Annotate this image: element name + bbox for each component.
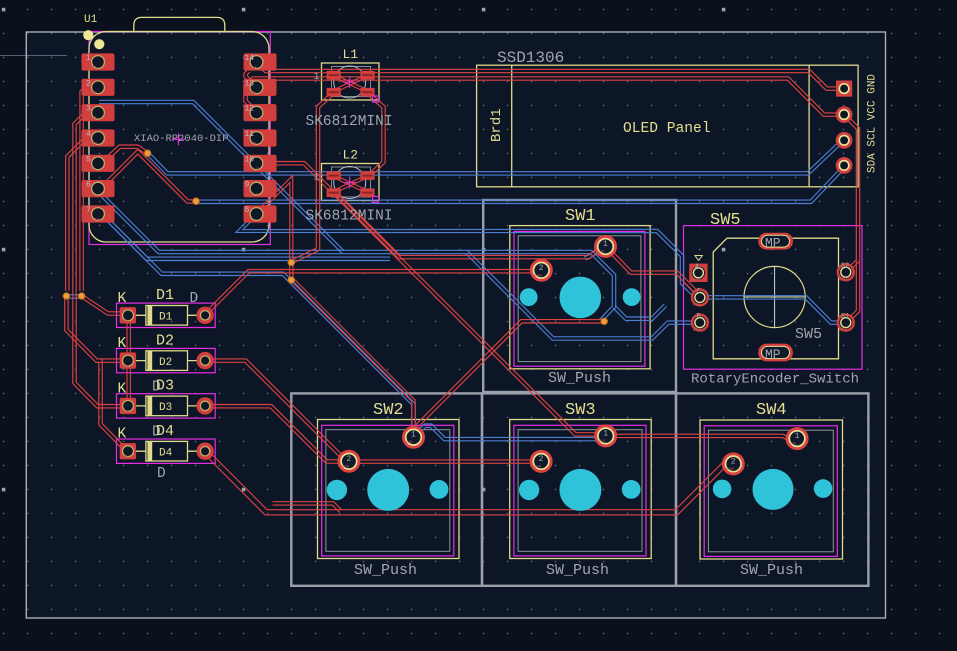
svg-text:SW_Push: SW_Push: [354, 562, 417, 579]
svg-text:9: 9: [245, 181, 250, 190]
svg-text:SW_Push: SW_Push: [546, 562, 609, 579]
svg-text:D3: D3: [156, 378, 174, 395]
svg-text:2: 2: [346, 455, 351, 464]
svg-text:D2: D2: [156, 332, 174, 349]
svg-text:D1: D1: [156, 287, 174, 304]
svg-text:1: 1: [795, 432, 800, 441]
svg-text:ROW2: ROW2: [84, 90, 97, 97]
svg-text:L2: L2: [343, 148, 359, 163]
svg-text:7: 7: [86, 206, 91, 215]
svg-text:1: 1: [603, 240, 608, 249]
svg-text:ROW: ROW: [342, 465, 350, 469]
svg-text:COL: COL: [599, 440, 607, 444]
svg-text:D1: D1: [159, 312, 173, 324]
svg-text:ROW: ROW: [121, 319, 129, 325]
svg-text:REN: REN: [691, 277, 699, 283]
svg-text:K: K: [118, 427, 127, 443]
svg-text:Brd1: Brd1: [489, 108, 505, 142]
svg-text:L1: L1: [343, 47, 359, 62]
svg-text:2: 2: [539, 264, 544, 273]
svg-text:SCL: SCL: [84, 191, 94, 198]
svg-text:COL: COL: [790, 443, 798, 447]
svg-text:ROW: ROW: [534, 274, 542, 278]
svg-text:K: K: [118, 336, 127, 352]
svg-text:SDA SCL VCC GND: SDA SCL VCC GND: [867, 74, 879, 173]
svg-text:SW2: SW2: [373, 401, 404, 420]
svg-text:1: 1: [86, 54, 91, 63]
svg-text:ROW: ROW: [121, 454, 129, 460]
svg-text:GND: GND: [693, 302, 701, 308]
svg-text:LED: LED: [246, 141, 257, 148]
svg-text:1: 1: [314, 173, 320, 184]
svg-text:RotaryEncoder_Switch: RotaryEncoder_Switch: [691, 372, 859, 388]
svg-text:1: 1: [314, 72, 320, 83]
svg-text:U1: U1: [84, 14, 98, 26]
svg-text:D: D: [157, 466, 166, 482]
svg-text:SW_IN: SW_IN: [84, 217, 101, 224]
svg-text:SK6812MINI: SK6812MINI: [306, 209, 393, 225]
svg-text:SW5: SW5: [710, 211, 741, 230]
svg-text:S2: S2: [841, 263, 849, 271]
svg-text:D: D: [190, 291, 199, 307]
svg-text:COL1: COL1: [246, 191, 260, 198]
svg-text:REN2: REN2: [84, 141, 97, 148]
svg-text:MP: MP: [765, 236, 781, 251]
svg-text:4: 4: [86, 130, 91, 139]
svg-text:ROW: ROW: [121, 364, 129, 370]
svg-text:2: 2: [731, 457, 736, 466]
svg-text:COL: COL: [407, 441, 415, 445]
svg-text:5: 5: [86, 155, 91, 164]
svg-text:13: 13: [245, 79, 255, 88]
svg-text:COL: COL: [599, 251, 607, 255]
svg-text:REN1: REN1: [84, 115, 98, 122]
svg-text:GND: GND: [246, 90, 257, 97]
svg-text:6: 6: [86, 181, 91, 190]
svg-text:1: 1: [603, 429, 608, 438]
svg-text:10: 10: [245, 155, 255, 164]
svg-text:ROW: ROW: [121, 409, 129, 415]
svg-text:11: 11: [245, 130, 255, 139]
svg-text:REN: REN: [839, 327, 847, 333]
svg-text:D4: D4: [159, 447, 173, 459]
svg-text:C: C: [696, 288, 700, 296]
svg-text:S1: S1: [841, 313, 849, 321]
svg-text:D3: D3: [159, 402, 172, 414]
svg-text:SDA: SDA: [84, 166, 95, 173]
svg-text:SW4: SW4: [756, 401, 787, 420]
svg-text:SW_Push: SW_Push: [548, 370, 611, 387]
svg-text:2: 2: [86, 79, 91, 88]
svg-text:SW5: SW5: [795, 326, 822, 343]
svg-text:K: K: [118, 381, 127, 397]
svg-text:COL2: COL2: [246, 166, 259, 173]
svg-text:+5V: +5V: [246, 65, 257, 72]
svg-text:ROW: ROW: [534, 465, 542, 469]
svg-text:14: 14: [245, 54, 255, 63]
svg-text:SK6812MINI: SK6812MINI: [306, 114, 393, 130]
svg-text:3: 3: [86, 105, 91, 114]
svg-text:OLED Panel: OLED Panel: [623, 121, 711, 137]
svg-text:12: 12: [245, 105, 255, 114]
svg-text:K: K: [118, 291, 127, 307]
svg-text:D2: D2: [159, 357, 172, 369]
svg-text:GND: GND: [839, 277, 847, 283]
svg-text:ROW: ROW: [726, 468, 734, 472]
svg-text:SW3: SW3: [565, 401, 596, 420]
svg-text:ROW1: ROW1: [84, 65, 98, 72]
svg-text:D4: D4: [156, 423, 174, 440]
svg-text:1: 1: [411, 431, 416, 440]
svg-text:REN: REN: [693, 327, 701, 333]
svg-text:SW1: SW1: [565, 207, 596, 226]
svg-text:2: 2: [539, 455, 544, 464]
svg-text:8: 8: [245, 206, 250, 215]
svg-text:SSD1306: SSD1306: [497, 49, 564, 67]
svg-text:MP: MP: [765, 347, 781, 362]
svg-text:SW_Push: SW_Push: [740, 562, 803, 579]
svg-text:B: B: [696, 313, 700, 321]
